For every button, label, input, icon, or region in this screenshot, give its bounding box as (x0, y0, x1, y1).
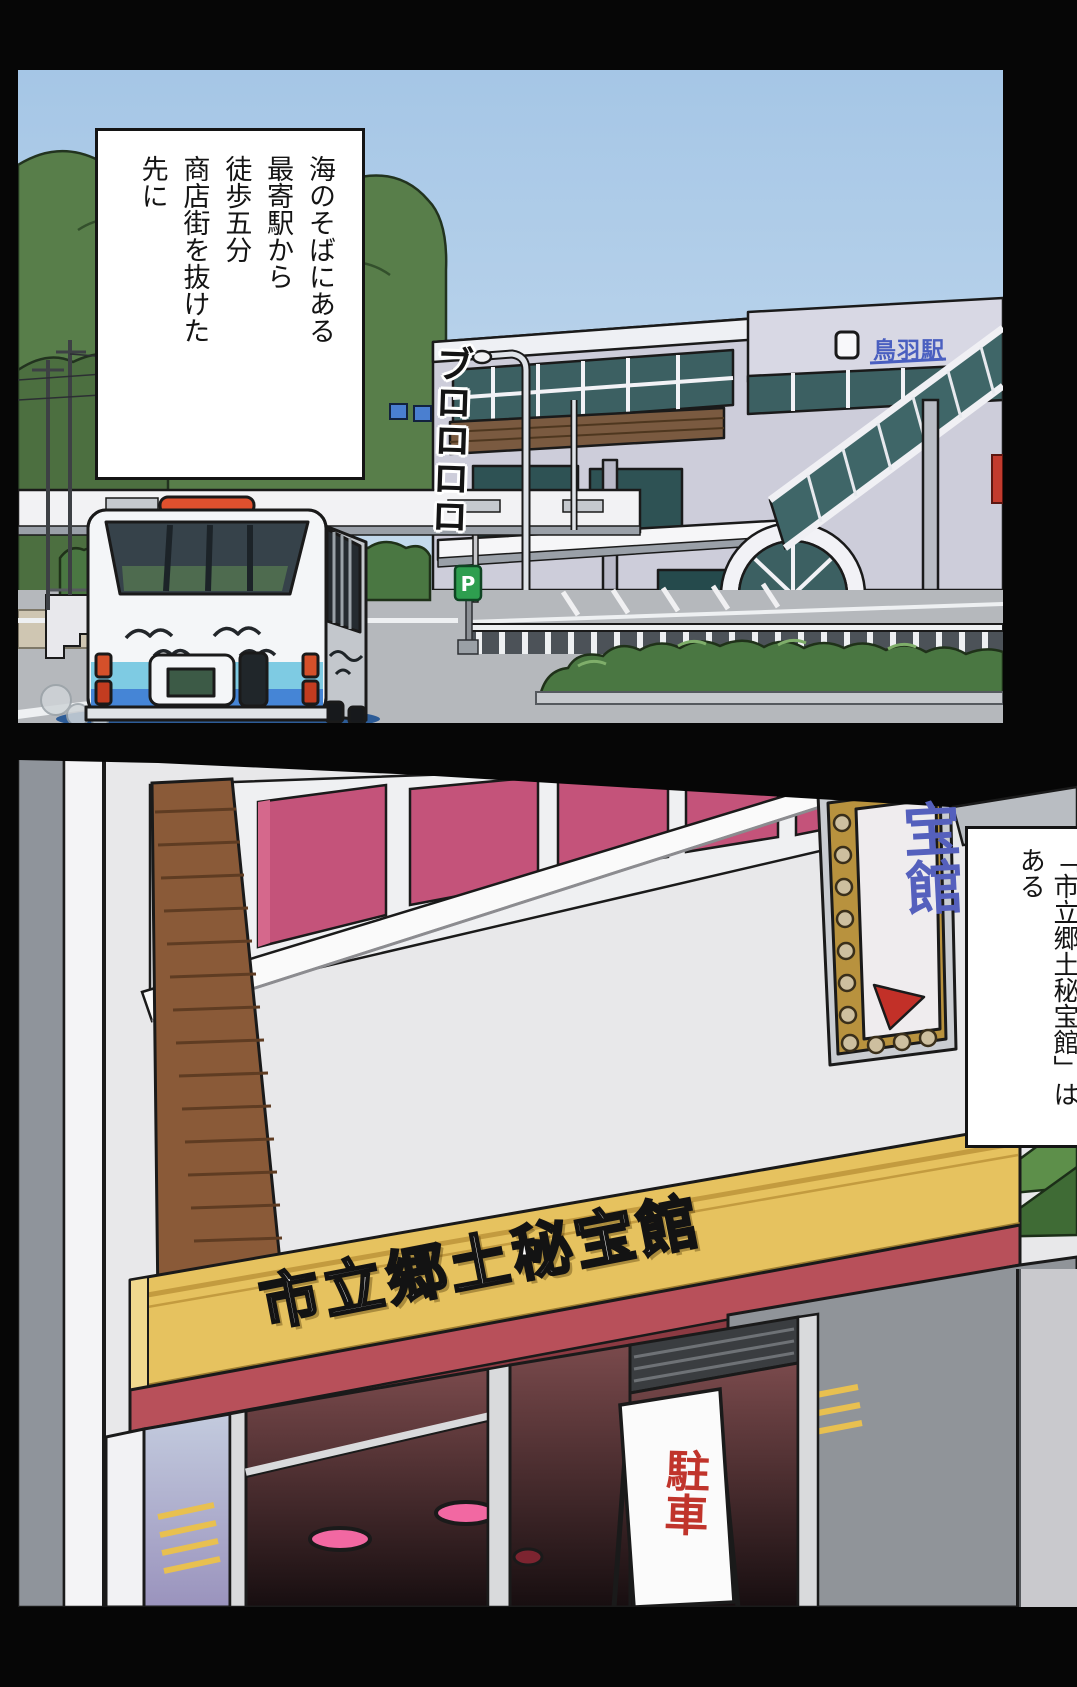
bus (86, 497, 366, 723)
narration-box-station: 海のそばにある 最寄駅から 徒歩五分 商店街を抜けた 先に (95, 128, 365, 480)
left-poles (18, 757, 104, 1607)
red-sign-fragment (992, 455, 1003, 503)
station-logo (836, 332, 858, 358)
bus-engine-sfx: ブロロロロ (393, 343, 472, 535)
comic-page: 鳥羽駅 (0, 0, 1077, 1687)
pink-light (310, 1528, 370, 1550)
parking-stand-sign-text: 駐車 (647, 1447, 709, 1609)
parking-sign-letter: P (461, 572, 476, 596)
vertical-sign-text: 宝館 (882, 798, 967, 1022)
narration-box-museum: 「市立郷土秘宝館」は ある (965, 826, 1077, 1148)
